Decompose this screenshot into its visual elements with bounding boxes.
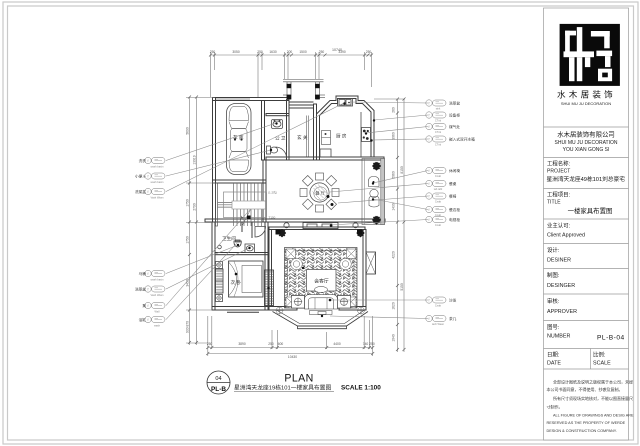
svg-text:3060: 3060 bbox=[392, 132, 396, 140]
svg-text:200: 200 bbox=[287, 50, 293, 54]
svg-text:Vash Wasn: Vash Wasn bbox=[151, 196, 165, 200]
svg-text:Cnab: Cnab bbox=[435, 200, 442, 204]
svg-text:所有尺寸须现场实地核对，不能以图直接量尺: 所有尺寸须现场实地核对，不能以图直接量尺 bbox=[553, 395, 633, 401]
svg-text:比例:: 比例: bbox=[593, 351, 605, 359]
svg-text:马桶: 马桶 bbox=[139, 271, 147, 276]
svg-text:日期:: 日期: bbox=[547, 352, 559, 359]
svg-text:水木居装饰: 水木居装饰 bbox=[557, 89, 616, 100]
svg-text:250: 250 bbox=[369, 342, 375, 346]
svg-text:CTnk: CTnk bbox=[435, 143, 442, 147]
svg-text:星洲湾天龙座49栋101刘总豪宅: 星洲湾天龙座49栋101刘总豪宅 bbox=[547, 175, 626, 183]
svg-text:10740: 10740 bbox=[332, 48, 342, 52]
svg-text:SHUI MU JU DECORATION: SHUI MU JU DECORATION bbox=[561, 101, 611, 106]
svg-text:YOU XIAN GONG SI: YOU XIAN GONG SI bbox=[563, 147, 610, 153]
svg-text:740: 740 bbox=[363, 342, 369, 346]
svg-text:审核:: 审核: bbox=[547, 297, 559, 305]
svg-text:凳: 凳 bbox=[142, 303, 146, 308]
svg-text:业主认可:: 业主认可: bbox=[547, 222, 570, 230]
svg-text:1620: 1620 bbox=[392, 302, 396, 310]
svg-text:卫生间: 卫生间 bbox=[222, 235, 236, 242]
svg-text:tach Wasn: tach Wasn bbox=[432, 322, 445, 326]
svg-text:沙发: 沙发 bbox=[449, 298, 457, 303]
svg-text:洗衣: 洗衣 bbox=[139, 158, 147, 163]
svg-text:PLAN: PLAN bbox=[284, 373, 313, 385]
svg-text:设计:: 设计: bbox=[547, 246, 559, 254]
svg-text:Cnab: Cnab bbox=[435, 223, 442, 227]
svg-text:洗菜盆: 洗菜盆 bbox=[449, 101, 460, 106]
svg-text:餐椅: 餐椅 bbox=[449, 194, 457, 199]
svg-text:一楼家具布置图: 一楼家具布置图 bbox=[568, 206, 613, 215]
svg-text:本公司书面同意，不得使用、抄袭及复制。: 本公司书面同意，不得使用、抄袭及复制。 bbox=[547, 386, 623, 392]
svg-text:制图:: 制图: bbox=[547, 271, 559, 279]
svg-text:PROJECT: PROJECT bbox=[547, 169, 570, 175]
svg-text:2060: 2060 bbox=[392, 171, 396, 179]
svg-text:工程名称:: 工程名称: bbox=[547, 160, 570, 168]
svg-text:1500: 1500 bbox=[299, 50, 307, 54]
svg-text:Cnab: Cnab bbox=[435, 213, 442, 217]
svg-text:Vash Wasn: Vash Wasn bbox=[151, 293, 165, 297]
svg-text:ALL FIGURE OF DRAWINGS AND DES: ALL FIGURE OF DRAWINGS AND DESIG ARE bbox=[553, 414, 634, 418]
svg-text:CTnk: CTnk bbox=[435, 119, 442, 123]
svg-text:洗菜盆: 洗菜盆 bbox=[135, 287, 146, 292]
svg-text:sink: sink bbox=[436, 107, 441, 111]
svg-text:煤气灶: 煤气灶 bbox=[449, 124, 460, 129]
svg-text:水木居装饰有限公司: 水木居装饰有限公司 bbox=[557, 130, 615, 139]
svg-text:厨 房: 厨 房 bbox=[336, 133, 347, 140]
svg-text:4400: 4400 bbox=[333, 342, 341, 346]
svg-text:Client Approved: Client Approved bbox=[547, 233, 585, 239]
svg-text:5150: 5150 bbox=[400, 283, 404, 291]
svg-text:250: 250 bbox=[319, 50, 325, 54]
svg-text:8150: 8150 bbox=[400, 166, 404, 174]
svg-text:茶几: 茶几 bbox=[449, 316, 457, 321]
svg-text:4220: 4220 bbox=[392, 251, 396, 259]
svg-text:1750: 1750 bbox=[186, 236, 190, 244]
svg-text:250: 250 bbox=[268, 342, 274, 346]
svg-text:SHUI MU JU DECORATION: SHUI MU JU DECORATION bbox=[555, 140, 618, 146]
svg-text:930 870: 930 870 bbox=[186, 321, 190, 333]
svg-text:图号:: 图号: bbox=[547, 323, 559, 331]
svg-text:洗菜盆: 洗菜盆 bbox=[135, 189, 146, 194]
svg-text:250: 250 bbox=[207, 342, 213, 346]
svg-text:CTnk: CTnk bbox=[435, 130, 442, 134]
svg-text:餐边柜: 餐边柜 bbox=[449, 207, 460, 212]
svg-text:250: 250 bbox=[210, 50, 216, 54]
svg-text:250: 250 bbox=[257, 50, 263, 54]
svg-text:PL-B: PL-B bbox=[211, 386, 226, 393]
svg-text:休闲椅: 休闲椅 bbox=[449, 168, 460, 173]
svg-text:13919: 13919 bbox=[193, 155, 197, 164]
svg-text:Cnab: Cnab bbox=[435, 174, 442, 178]
svg-text:餐 厅: 餐 厅 bbox=[315, 189, 325, 196]
svg-text:星洲湾天龙座19栋101一楼家具布置图: 星洲湾天龙座19栋101一楼家具布置图 bbox=[234, 384, 331, 392]
svg-text:小便斗: 小便斗 bbox=[135, 174, 146, 179]
svg-text:NUMBER: NUMBER bbox=[547, 334, 570, 340]
svg-text:wash: wash bbox=[154, 324, 161, 328]
svg-text:浴缸: 浴缸 bbox=[139, 317, 147, 322]
svg-text:电视柜: 电视柜 bbox=[449, 217, 460, 222]
svg-text:1040: 1040 bbox=[392, 334, 396, 342]
svg-text:Cnab: Cnab bbox=[435, 304, 442, 308]
svg-text:次 卧: 次 卧 bbox=[231, 279, 242, 286]
svg-text:餐桌: 餐桌 bbox=[449, 181, 457, 186]
svg-text:设备柜: 设备柜 bbox=[449, 113, 460, 118]
svg-text:T150: T150 bbox=[269, 216, 276, 220]
svg-text:10430: 10430 bbox=[288, 355, 297, 359]
svg-text:嵌入式双开冰箱: 嵌入式双开冰箱 bbox=[449, 137, 475, 142]
svg-text:DESINER: DESINER bbox=[547, 258, 571, 264]
svg-text:tab tabl: tab tabl bbox=[434, 187, 443, 191]
svg-text:DESIGN & CONSTRUCTION COMPANY.: DESIGN & CONSTRUCTION COMPANY. bbox=[547, 429, 617, 433]
svg-text:玄 关: 玄 关 bbox=[297, 134, 308, 141]
svg-text:1630: 1630 bbox=[269, 50, 277, 54]
svg-text:APPROVER: APPROVER bbox=[547, 309, 577, 315]
svg-text:wash basin: wash basin bbox=[151, 180, 165, 184]
svg-text:04: 04 bbox=[215, 376, 221, 382]
svg-text:寸制作。: 寸制作。 bbox=[547, 404, 563, 410]
svg-text:TITLE: TITLE bbox=[547, 200, 561, 206]
svg-text:5690: 5690 bbox=[186, 127, 190, 135]
svg-text:wash basin: wash basin bbox=[151, 165, 165, 169]
svg-text:600: 600 bbox=[278, 342, 284, 346]
svg-text:2790: 2790 bbox=[193, 203, 197, 211]
svg-text:DATE: DATE bbox=[547, 361, 561, 367]
svg-text:260: 260 bbox=[392, 107, 396, 113]
svg-text:RESERVED AS THE PROPERTY OF WE: RESERVED AS THE PROPERTY OF WERDE bbox=[547, 421, 626, 425]
svg-text:工程项目:: 工程项目: bbox=[547, 191, 570, 199]
svg-text:1430: 1430 bbox=[392, 203, 396, 211]
svg-text:3050: 3050 bbox=[232, 50, 240, 54]
svg-text:1750: 1750 bbox=[186, 199, 190, 207]
svg-text:车 库: 车 库 bbox=[233, 134, 244, 141]
svg-text:SCALE 1:100: SCALE 1:100 bbox=[341, 385, 381, 392]
svg-text:3890: 3890 bbox=[238, 342, 246, 346]
svg-text:DESINGER: DESINGER bbox=[547, 283, 575, 289]
svg-text:会客厅: 会客厅 bbox=[314, 278, 329, 285]
svg-text:SCALE: SCALE bbox=[593, 361, 611, 367]
svg-text:wash basin: wash basin bbox=[151, 278, 165, 282]
svg-text:全部设计图纸及说明之版权属于本公司，未经: 全部设计图纸及说明之版权属于本公司，未经 bbox=[553, 379, 633, 385]
svg-text:Wall: Wall bbox=[155, 310, 160, 314]
svg-text:(1:2孔): (1:2孔) bbox=[268, 190, 277, 195]
svg-text:250: 250 bbox=[366, 50, 372, 54]
svg-text:PL-B-04: PL-B-04 bbox=[597, 335, 625, 342]
